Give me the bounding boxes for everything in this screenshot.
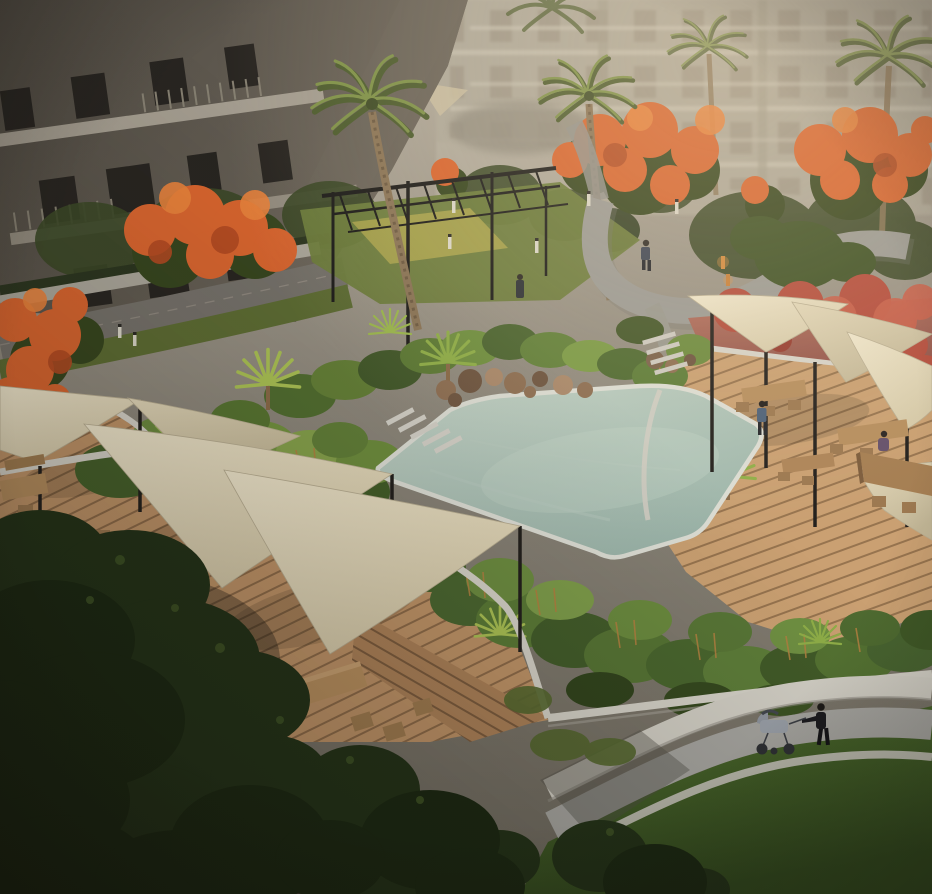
rendered-scene	[0, 0, 932, 894]
vignette	[0, 0, 932, 894]
